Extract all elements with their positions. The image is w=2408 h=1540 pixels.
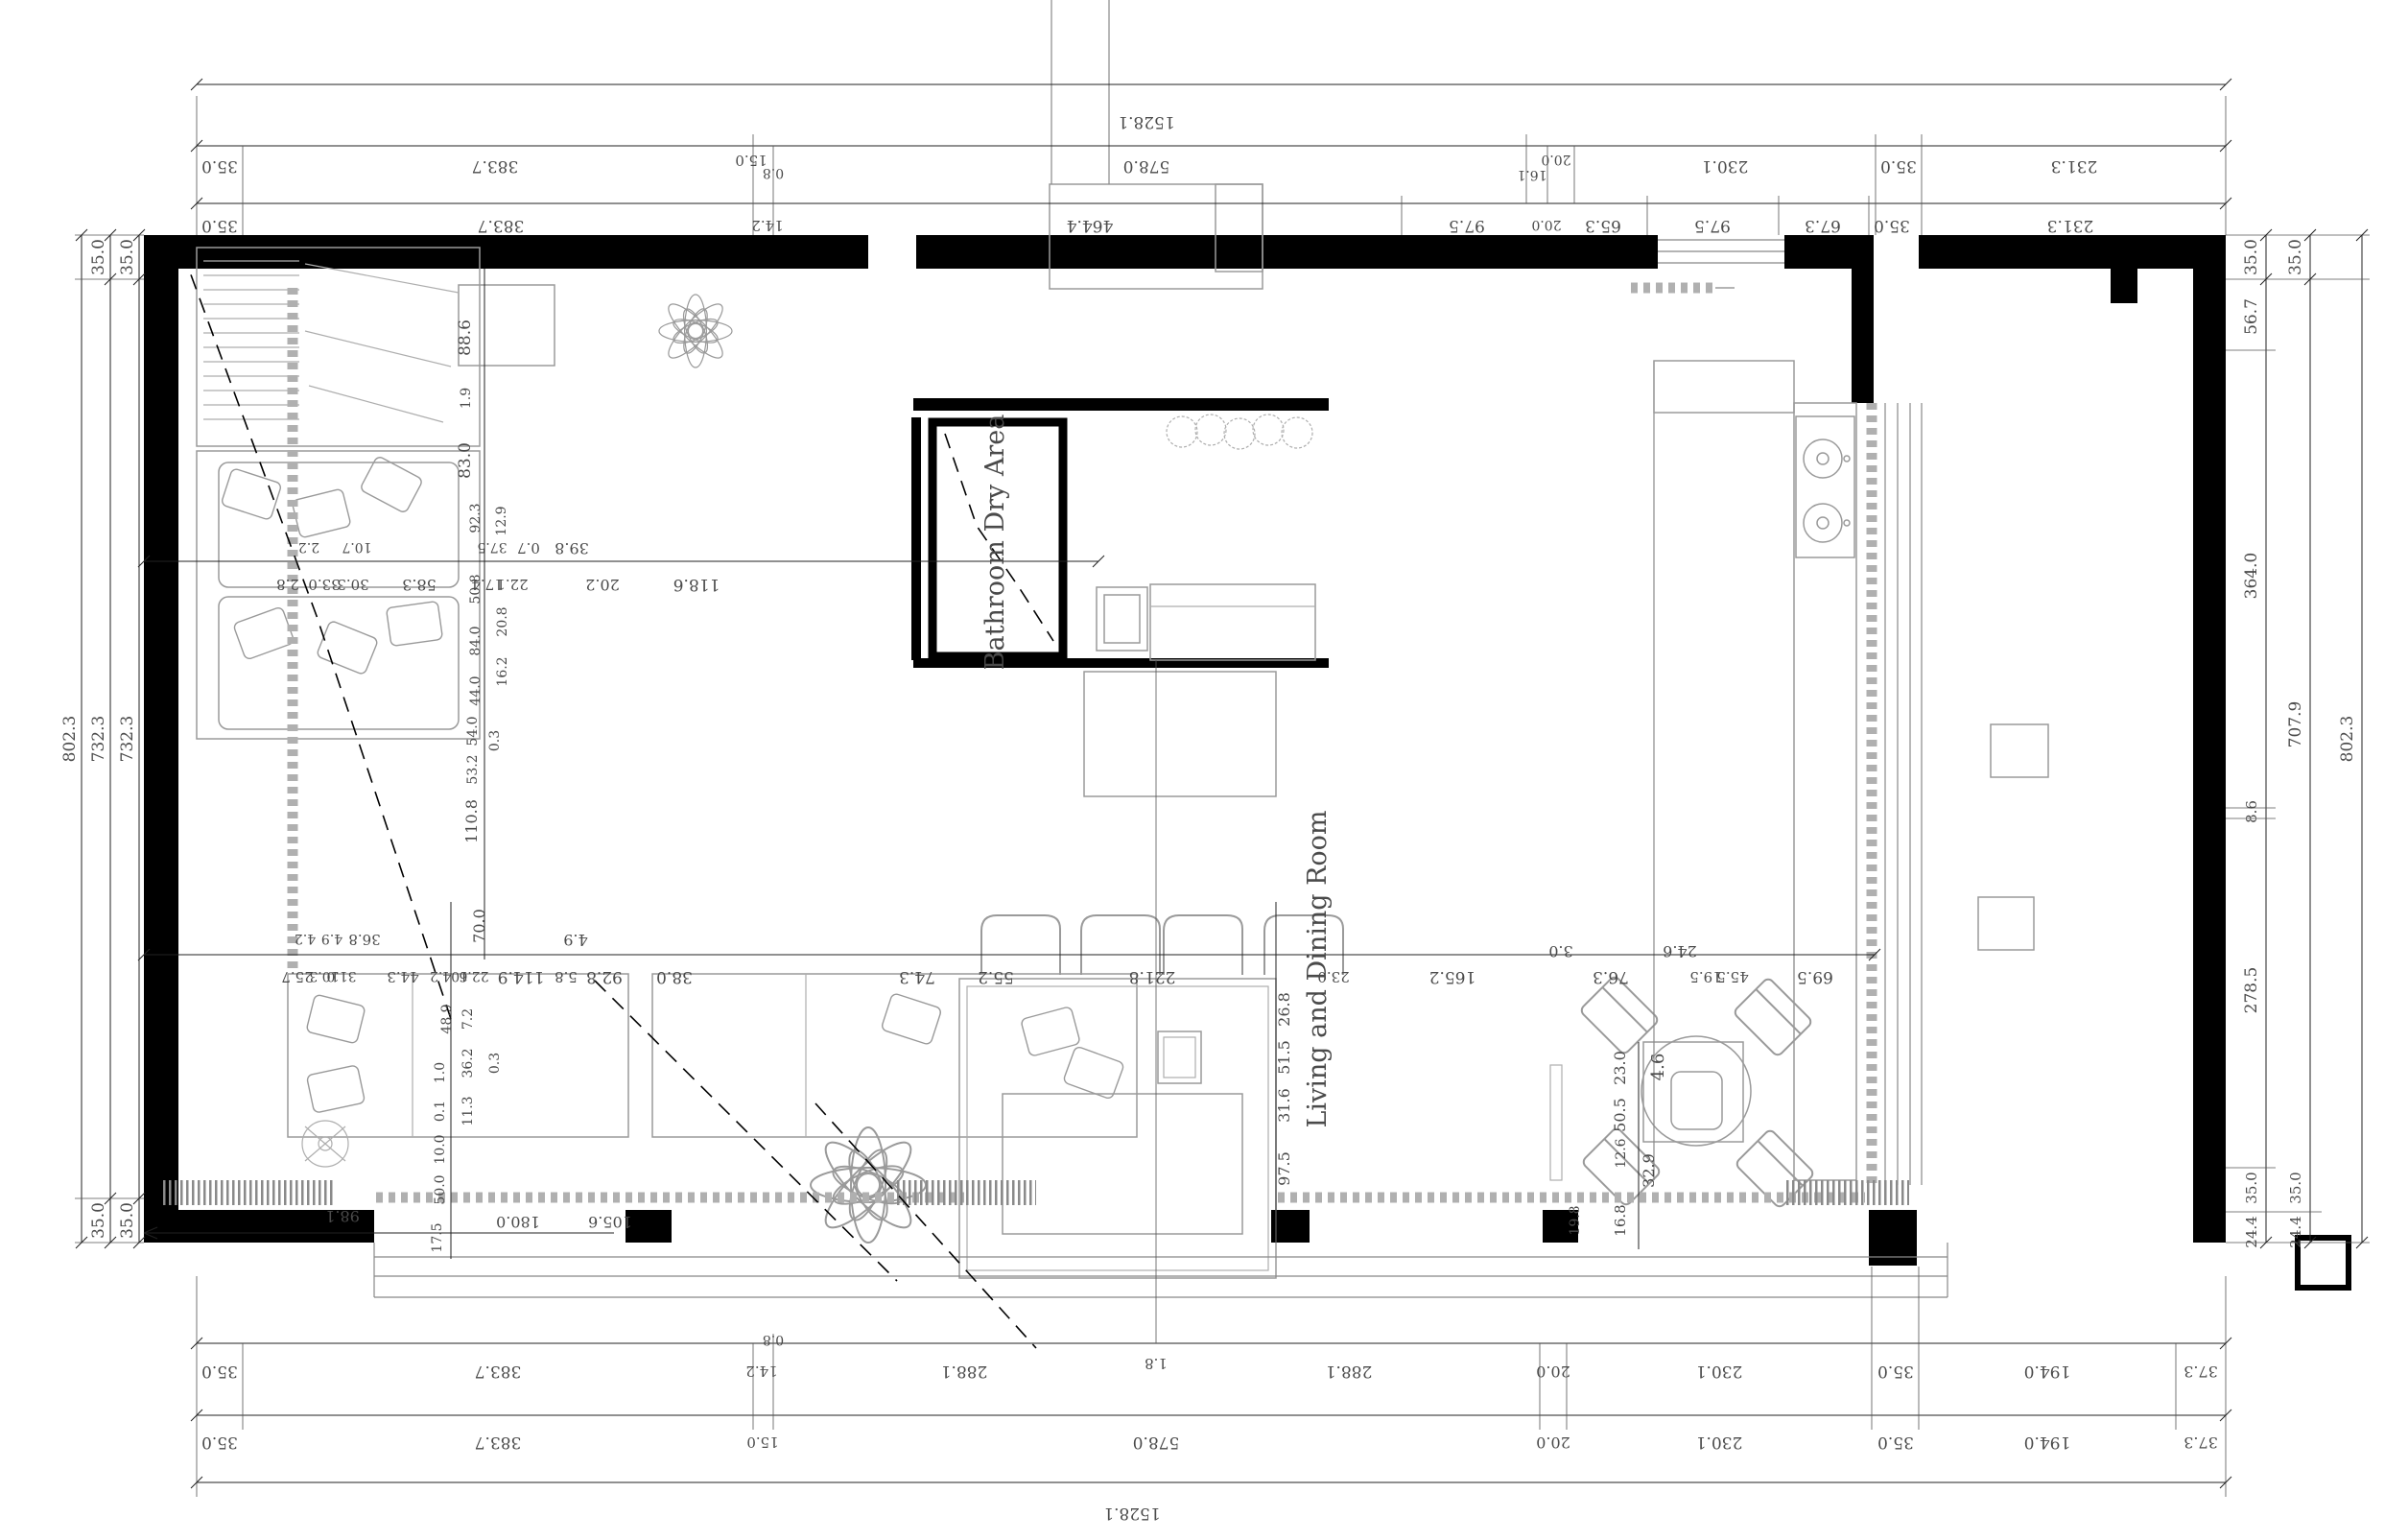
dim-label-top_row2: 20.0 <box>1541 152 1570 167</box>
dim-label-chain_upper_below: 33.0 <box>308 576 340 593</box>
dim-label-right_mid: 35.0 <box>2287 1172 2304 1203</box>
dim-label-col_left_vertical: 0.3 <box>487 1053 503 1074</box>
dim-label-living_chain: 97.5 <box>1275 1151 1293 1186</box>
dim-label-dining_chain: 23.0 <box>1611 1051 1629 1085</box>
floor-plan-drawing: Bathroom Dry AreaLiving and Dining Room1… <box>0 0 2408 1540</box>
annotation-layer: Bathroom Dry AreaLiving and Dining Room1… <box>60 112 2357 1523</box>
wall-bathroom-left <box>911 417 921 660</box>
dim-label-bottom_row1: 35.0 <box>1877 1362 1914 1381</box>
dim-label-bottom_total: 1528.1 <box>1103 1504 1160 1523</box>
dim-label-chain_upper_above: 0.7 <box>517 539 540 557</box>
dim-label-left_inner: 732.3 <box>118 716 137 763</box>
dim-label-chain_mid_below: 114.9 <box>498 967 545 986</box>
dim-label-col_left_vertical: 92.3 <box>468 503 484 533</box>
dim-label-living_chain: 51.5 <box>1275 1040 1293 1075</box>
dim-label-right_inner: 364.0 <box>2242 553 2261 600</box>
dim-label-dining_chain: 50.5 <box>1611 1098 1629 1132</box>
dim-label-col_left_vertical: 84.0 <box>468 626 484 655</box>
dim-label-col_left_vertical: 53.2 <box>465 754 481 784</box>
dim-label-col_left_vertical: 50.8 <box>468 574 484 604</box>
dim-label-bottom_row2: 35.0 <box>1877 1433 1914 1452</box>
dim-label-right_inner: 35.0 <box>2242 239 2261 275</box>
dim-label-bottom_row2: 578.0 <box>1133 1433 1180 1452</box>
dim-label-chain_mid_above: 4.9 <box>321 931 342 946</box>
dim-label-dining_chain: 16.8 <box>1612 1204 1629 1236</box>
dim-label-chain_mid_below: 92.8 <box>586 967 623 986</box>
balcony-unit-2 <box>1978 897 2034 950</box>
fan-symbol <box>302 1121 348 1167</box>
dim-label-bottom_row1: 20.0 <box>1536 1362 1570 1381</box>
dim-label-bottom_row1: 14.2 <box>745 1362 777 1380</box>
dim-label-chain_mid_below: 45.5 <box>1716 968 1748 985</box>
dim-label-col_left_vertical: 110.8 <box>462 799 481 843</box>
dim-label-top_row3: 231.3 <box>2047 216 2094 235</box>
dim-label-col_left_vertical: 7.2 <box>460 1008 476 1030</box>
dim-label-dining_chain: 12.6 <box>1614 1138 1629 1168</box>
dim-label-chain_mid_below: 76.3 <box>1593 967 1629 986</box>
dim-label-chain_mid_below: 55.2 <box>978 967 1014 986</box>
dim-label-bottom_row1: 383.7 <box>475 1362 522 1381</box>
dim-label-left_mid: 732.3 <box>89 716 108 763</box>
dim-label-right_inner: 278.5 <box>2242 967 2261 1014</box>
dim-label-top_row3: 20.0 <box>1531 217 1561 232</box>
dim-label-top_row3: 65.3 <box>1585 216 1621 235</box>
dim-label-top_total: 1528.1 <box>1118 112 1174 131</box>
wall-top-seg2 <box>916 235 1658 269</box>
rug <box>959 979 1276 1278</box>
dim-label-right_outer: 802.3 <box>2338 716 2357 763</box>
dim-label-dining_chain: 32.9 <box>1640 1153 1658 1188</box>
dim-label-right_mid: 707.9 <box>2286 701 2305 748</box>
dim-label-top_row3: 14.2 <box>751 217 783 234</box>
dim-label-top_row2: 383.7 <box>472 156 519 176</box>
dim-label-col_left_vertical: 12.9 <box>494 506 509 535</box>
dim-label-left_outer: 802.3 <box>60 716 80 763</box>
dim-label-bottom_row1: 35.0 <box>201 1362 238 1381</box>
dim-label-chain_upper_below: 22.1 <box>496 576 528 593</box>
dim-label-right_inner: 56.7 <box>2242 298 2261 335</box>
dim-label-chain_mid_below: 165.2 <box>1429 967 1476 986</box>
top-wall-window <box>1658 240 1784 263</box>
dim-label-chain_mid_above: 3.0 <box>1548 942 1572 960</box>
dim-label-left_mid: 35.0 <box>89 239 108 275</box>
dim-label-chain_upper_below: 30.3 <box>337 576 368 593</box>
dim-label-chain_mid_below: 69.5 <box>1797 967 1833 986</box>
dim-label-col_left_vertical: 54.0 <box>465 716 481 746</box>
wall-corridor-top <box>913 398 1329 411</box>
dim-label-bottom_row2: 35.0 <box>201 1433 238 1452</box>
dim-label-col_left_vertical: 48.9 <box>439 1004 455 1033</box>
balcony-unit-1 <box>1991 724 2048 777</box>
dim-label-bottom_row1: 1.8 <box>1145 1355 1168 1372</box>
dim-label-bottom_row2: 230.1 <box>1696 1433 1743 1452</box>
dim-label-chain_mid_below: 38.0 <box>656 967 693 986</box>
dim-label-bottom_row2: 15.0 <box>746 1433 778 1451</box>
dim-label-bottom_row2: 20.0 <box>1536 1433 1570 1452</box>
dim-label-bottom_row1: 194.0 <box>2024 1362 2071 1381</box>
storage-room <box>1084 672 1276 796</box>
dim-label-col_left_vertical: 36.2 <box>460 1048 476 1078</box>
dim-label-top_row2: 35.0 <box>1880 156 1917 176</box>
dim-label-left_mid: 35.0 <box>89 1202 108 1239</box>
wall-pier-top <box>1852 235 1874 403</box>
wall-top-seg4 <box>1919 235 2226 269</box>
sofa-area <box>197 451 480 739</box>
dim-label-living_chain: 31.6 <box>1275 1088 1293 1123</box>
wall-top-seg3 <box>1784 235 1852 269</box>
dim-label-chain_upper_above: 2.2 <box>298 539 319 555</box>
dim-label-col_left_vertical: 0.1 <box>433 1101 448 1122</box>
radiator-dining <box>1550 1065 1562 1180</box>
bed-2 <box>652 974 1137 1137</box>
dim-label-col_left_vertical: 16.2 <box>495 656 510 686</box>
dim-label-top_row3: 35.0 <box>1874 216 1910 235</box>
dim-label-chain_upper_below: 118.6 <box>673 575 720 594</box>
dim-label-top_row3: 35.0 <box>201 216 238 235</box>
dim-label-col_left_vertical: 83.0 <box>456 442 475 479</box>
dim-label-col_left_vertical: 20.8 <box>495 606 510 636</box>
dim-label-chain_mid_below: 23.0 <box>1317 968 1349 985</box>
dim-label-chain_upper_above: 37.5 <box>477 539 507 555</box>
dim-label-dining_chain: 19.8 <box>1568 1205 1583 1235</box>
dim-label-bottom_row2: 194.0 <box>2024 1433 2071 1452</box>
dim-label-right_mid: 24.4 <box>2287 1216 2304 1247</box>
bed-1 <box>288 974 628 1137</box>
dim-label-col_left_vertical: 1.0 <box>433 1062 448 1083</box>
plant-row <box>1167 415 1312 449</box>
dim-label-top_row2: 230.1 <box>1702 156 1749 176</box>
dim-label-right_inner: 35.0 <box>2243 1172 2260 1203</box>
floor-plan-canvas: Bathroom Dry AreaLiving and Dining Room1… <box>0 0 2408 1540</box>
dimension-lines <box>75 79 2370 1497</box>
wall-right <box>2193 235 2226 1243</box>
dim-label-top_row2: 15.0 <box>735 152 767 169</box>
dim-label-bottom_misc: 105.6 <box>588 1213 632 1231</box>
dim-label-right_inner: 24.4 <box>2243 1216 2260 1247</box>
dim-label-top_row3: 97.5 <box>1449 216 1485 235</box>
dim-label-col_left_vertical: 10.0 <box>433 1134 448 1164</box>
dim-label-chain_mid_below: 74.3 <box>899 967 935 986</box>
dim-label-chain_upper_below: 58.3 <box>402 576 437 594</box>
dim-label-chain_upper_below: 2.8 <box>276 576 299 593</box>
dim-label-bottom_row1: 288.1 <box>941 1362 988 1381</box>
dim-label-col_left_vertical: 1.9 <box>459 388 474 409</box>
dim-label-top_row2: 0.8 <box>763 165 784 180</box>
dim-label-col_left_vertical: 70.0 <box>470 909 488 943</box>
sofa-cushions <box>221 456 442 675</box>
dim-label-top_row2: 578.0 <box>1123 156 1170 176</box>
dim-label-bottom_row1: 288.1 <box>1326 1362 1373 1381</box>
wall-stub-top-right <box>2111 269 2137 303</box>
dim-label-col_left_vertical: 44.0 <box>468 675 484 705</box>
dim-label-chain_mid_below: 22.6 <box>459 968 488 983</box>
dim-label-bottom_misc: 180.0 <box>496 1213 540 1231</box>
dim-label-left_inner: 35.0 <box>118 1202 137 1239</box>
dim-label-bottom_row2: 383.7 <box>475 1433 522 1452</box>
dim-label-top_row3: 97.5 <box>1694 216 1731 235</box>
dim-label-top_row2: 16.1 <box>1517 167 1546 182</box>
dim-label-chain_mid_above: 4.9 <box>563 931 587 949</box>
dim-label-bottom_row1: 0.8 <box>763 1332 784 1347</box>
dim-label-col_left_vertical: 50.0 <box>433 1174 448 1204</box>
dim-label-top_row3: 464.4 <box>1067 216 1114 235</box>
dim-label-col_left_vertical: 17.5 <box>430 1222 445 1252</box>
wall-top-seg1 <box>178 235 868 269</box>
dim-label-col_left_vertical: 11.3 <box>460 1096 476 1125</box>
dim-label-dining_chain: 4.6 <box>1648 1054 1668 1081</box>
dining-set <box>1579 975 1814 1208</box>
dim-label-chain_mid_above: 4.2 <box>295 931 316 946</box>
stove <box>1796 416 1854 557</box>
dim-label-chain_mid_above: 24.6 <box>1663 942 1697 960</box>
dim-label-chain_upper_above: 10.7 <box>342 539 371 555</box>
room-label: Bathroom Dry Area <box>980 415 1010 671</box>
dim-label-right_mid: 35.0 <box>2286 239 2305 275</box>
dim-label-chain_mid_above: 36.8 <box>348 931 380 948</box>
dim-label-living_chain: 26.8 <box>1275 992 1293 1027</box>
dim-label-chain_upper_below: 20.2 <box>585 576 620 594</box>
dim-label-bottom_row2: 37.3 <box>2184 1433 2218 1452</box>
dim-label-col_left_vertical: 0.3 <box>487 730 503 751</box>
wall-bottom-pier2 <box>1271 1210 1310 1243</box>
dim-label-right_inner: 8.6 <box>2243 800 2260 823</box>
dim-label-top_row3: 383.7 <box>478 216 525 235</box>
hall-table <box>1003 1094 1242 1234</box>
dim-label-top_row3: 67.3 <box>1805 216 1841 235</box>
dim-label-bottom_row1: 37.3 <box>2184 1362 2218 1381</box>
column-outside-right <box>2298 1238 2349 1288</box>
dim-label-top_row2: 35.0 <box>201 156 238 176</box>
dim-label-bottom_misc: 98.1 <box>325 1207 360 1225</box>
dim-label-chain_mid_below: 31.0 <box>326 968 356 983</box>
dim-label-chain_mid_below: 25.7 <box>281 968 313 985</box>
wall-left <box>144 235 178 1243</box>
dim-label-bottom_row1: 230.1 <box>1696 1362 1743 1381</box>
dim-label-top_row2: 231.3 <box>2051 156 2098 176</box>
dim-label-left_inner: 35.0 <box>118 239 137 275</box>
window-band-right <box>1885 403 1922 1185</box>
dim-label-col_left_vertical: 88.6 <box>456 320 475 356</box>
kitchen-cabinet <box>1654 361 1794 413</box>
dim-label-chain_mid_below: 5.8 <box>555 968 578 985</box>
dim-label-chain_mid_below: 221.8 <box>1129 967 1176 986</box>
wardrobe-rail <box>203 261 459 422</box>
dim-label-chain_upper_above: 39.8 <box>555 539 589 557</box>
dim-label-chain_mid_below: 44.3 <box>387 968 418 985</box>
divan <box>1150 584 1315 660</box>
